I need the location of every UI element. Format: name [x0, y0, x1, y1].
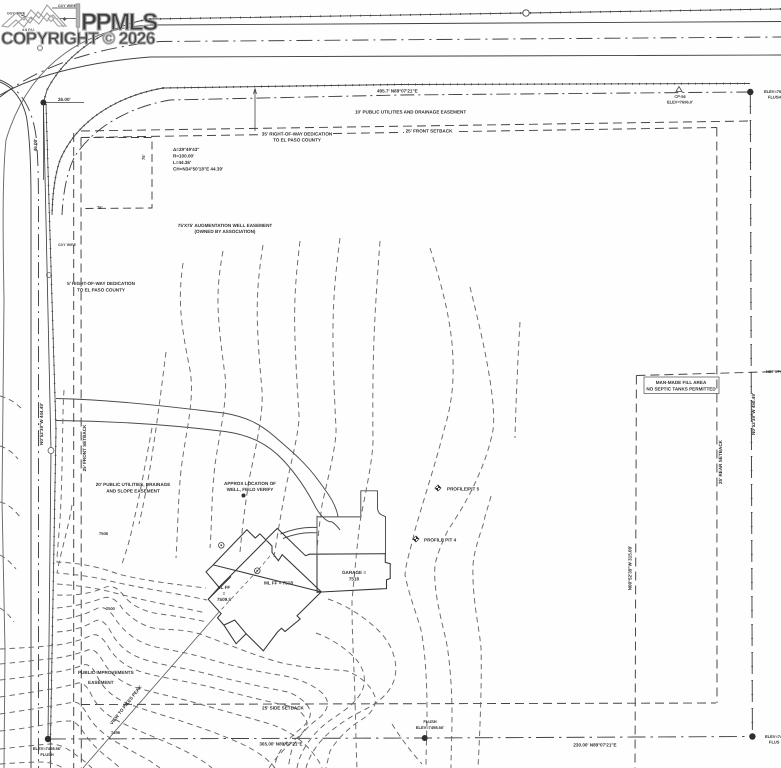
svg-text:25' FRONT SETBACK: 25' FRONT SETBACK	[82, 424, 87, 471]
svg-text:GARAGE =: GARAGE =	[342, 570, 366, 575]
svg-text:FLUS: FLUS	[769, 740, 780, 745]
svg-text:75': 75'	[141, 155, 146, 160]
svg-text:26.00': 26.00'	[58, 97, 71, 102]
svg-text:75': 75'	[97, 205, 102, 210]
svg-text:20' PUBLIC UTILITIES, DRAINAGE: 20' PUBLIC UTILITIES, DRAINAGE	[96, 482, 171, 487]
svg-text:FLUSH: FLUSH	[768, 95, 781, 100]
svg-text:CH=N34°50'18"E 44.39': CH=N34°50'18"E 44.39'	[173, 167, 223, 172]
svg-text:7518: 7518	[349, 577, 360, 582]
svg-text:7498: 7498	[111, 730, 121, 735]
svg-text:FLUSH: FLUSH	[40, 752, 53, 757]
svg-text:75'X75' AUGMENTATION WELL EASE: 75'X75' AUGMENTATION WELL EASEMENT	[178, 223, 273, 228]
svg-text:N00°52'39"W 315.00': N00°52'39"W 315.00'	[628, 546, 633, 591]
svg-text:ELEV=7498.56': ELEV=7498.56'	[416, 725, 444, 730]
svg-text:365.00' N89°07'21"E: 365.00' N89°07'21"E	[259, 742, 302, 747]
svg-text:7500: 7500	[106, 606, 116, 611]
svg-text:Δ=29°49'43": Δ=29°49'43"	[173, 147, 199, 152]
svg-text:25' SIDE SETBACK: 25' SIDE SETBACK	[262, 706, 304, 711]
svg-text:230.00' N89°07'21"E: 230.00' N89°07'21"E	[573, 743, 616, 748]
svg-text:CP-56: CP-56	[674, 94, 686, 99]
svg-text:GUY WIRE: GUY WIRE	[58, 4, 77, 8]
svg-text:APPROX LOCATION OF: APPROX LOCATION OF	[224, 481, 276, 486]
svg-text:NO SEPTIC TANKS PERMITTED: NO SEPTIC TANKS PERMITTED	[646, 387, 716, 392]
svg-text:N89°07'21"E: N89°07'21"E	[766, 369, 781, 374]
svg-text:ELEV=74: ELEV=74	[765, 734, 781, 739]
svg-text:ELEV=7696.0': ELEV=7696.0'	[667, 100, 693, 105]
svg-text:7508: 7508	[99, 531, 109, 536]
svg-text:EASEMENT: EASEMENT	[88, 680, 114, 685]
svg-text:ELEV=7696.5': ELEV=7696.5'	[764, 89, 781, 94]
svg-text:5' RIGHT-OF-WAY DEDICATION: 5' RIGHT-OF-WAY DEDICATION	[67, 281, 136, 286]
svg-text:N0°52'39"W 444.49': N0°52'39"W 444.49'	[39, 403, 44, 445]
svg-text:GUY WIRE: GUY WIRE	[58, 243, 77, 247]
svg-text:N0°52'39"W 450.49': N0°52'39"W 450.49'	[751, 393, 756, 435]
svg-text:25' REAR SETBACK: 25' REAR SETBACK	[718, 439, 723, 484]
svg-text:L=44.36': L=44.36'	[173, 160, 191, 165]
svg-text:PUBLIC IMPROVEMENTS: PUBLIC IMPROVEMENTS	[78, 670, 134, 675]
svg-text:PROFILE PIT 4: PROFILE PIT 4	[424, 538, 457, 543]
svg-text:ELEV=7498.56': ELEV=7498.56'	[33, 746, 61, 751]
svg-text:ML FF = 7518: ML FF = 7518	[264, 581, 293, 586]
svg-text:25' FRONT SETBACK: 25' FRONT SETBACK	[406, 129, 453, 134]
svg-text:WELL, FIELD VERIFY: WELL, FIELD VERIFY	[227, 487, 274, 492]
svg-text:TO EL PASO COUNTY: TO EL PASO COUNTY	[273, 138, 321, 143]
svg-text:7509.5: 7509.5	[217, 597, 231, 602]
svg-text:COPYRIGHT © 2026: COPYRIGHT © 2026	[1, 28, 155, 48]
svg-text:46.00': 46.00'	[33, 139, 38, 152]
svg-text:FLUSH: FLUSH	[423, 719, 436, 724]
svg-text:(OWNED BY ASSOCIATION): (OWNED BY ASSOCIATION)	[195, 229, 256, 234]
svg-text:35' RIGHT-OF-WAY DEDICATION: 35' RIGHT-OF-WAY DEDICATION	[262, 132, 333, 137]
svg-text:495.7' N89°07'21"E: 495.7' N89°07'21"E	[377, 89, 418, 94]
svg-text:10' PUBLIC UTILITIES AND DRAIN: 10' PUBLIC UTILITIES AND DRAINAGE EASEME…	[355, 110, 466, 115]
svg-text:=: =	[223, 591, 226, 596]
svg-text:R=100.00': R=100.00'	[173, 154, 194, 159]
svg-text:PROFILE/PIT 5: PROFILE/PIT 5	[447, 487, 480, 492]
svg-text:MAN-MADE FILL AREA: MAN-MADE FILL AREA	[656, 380, 707, 385]
svg-text:LL FF: LL FF	[218, 585, 231, 590]
svg-text:AND SLOPE EASEMENT: AND SLOPE EASEMENT	[106, 489, 160, 494]
svg-text:TO EL PASO COUNTY: TO EL PASO COUNTY	[77, 288, 125, 293]
